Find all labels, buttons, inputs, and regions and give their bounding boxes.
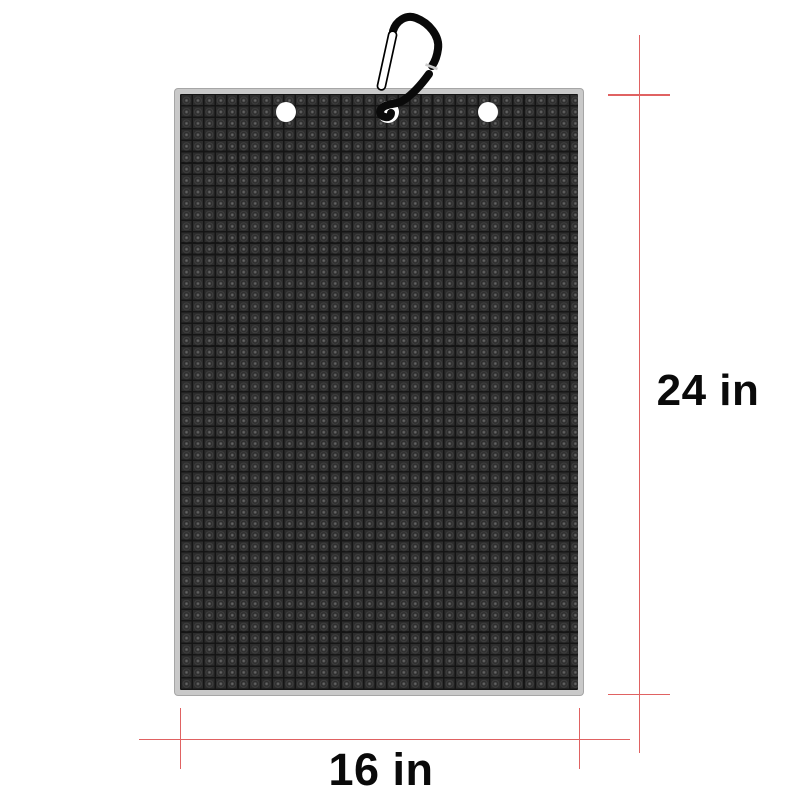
carabiner-clip-icon xyxy=(360,5,460,130)
height-dimension-tick-top xyxy=(608,94,670,96)
carabiner-gate xyxy=(377,30,398,90)
grommet-right xyxy=(478,102,498,122)
product-dimension-diagram: 24 in 16 in xyxy=(0,0,800,800)
width-dimension-tick-left xyxy=(180,708,182,769)
height-dimension-tick-bottom xyxy=(608,694,670,696)
height-label: 24 in xyxy=(657,366,760,416)
width-dimension-line xyxy=(139,739,630,741)
grommet-left xyxy=(276,102,296,122)
height-dimension-line xyxy=(639,35,641,753)
mat xyxy=(175,89,583,695)
width-label: 16 in xyxy=(328,744,433,796)
mat-waffle-texture xyxy=(180,94,578,690)
width-dimension-tick-right xyxy=(579,708,581,769)
carabiner-body-top xyxy=(393,17,438,66)
